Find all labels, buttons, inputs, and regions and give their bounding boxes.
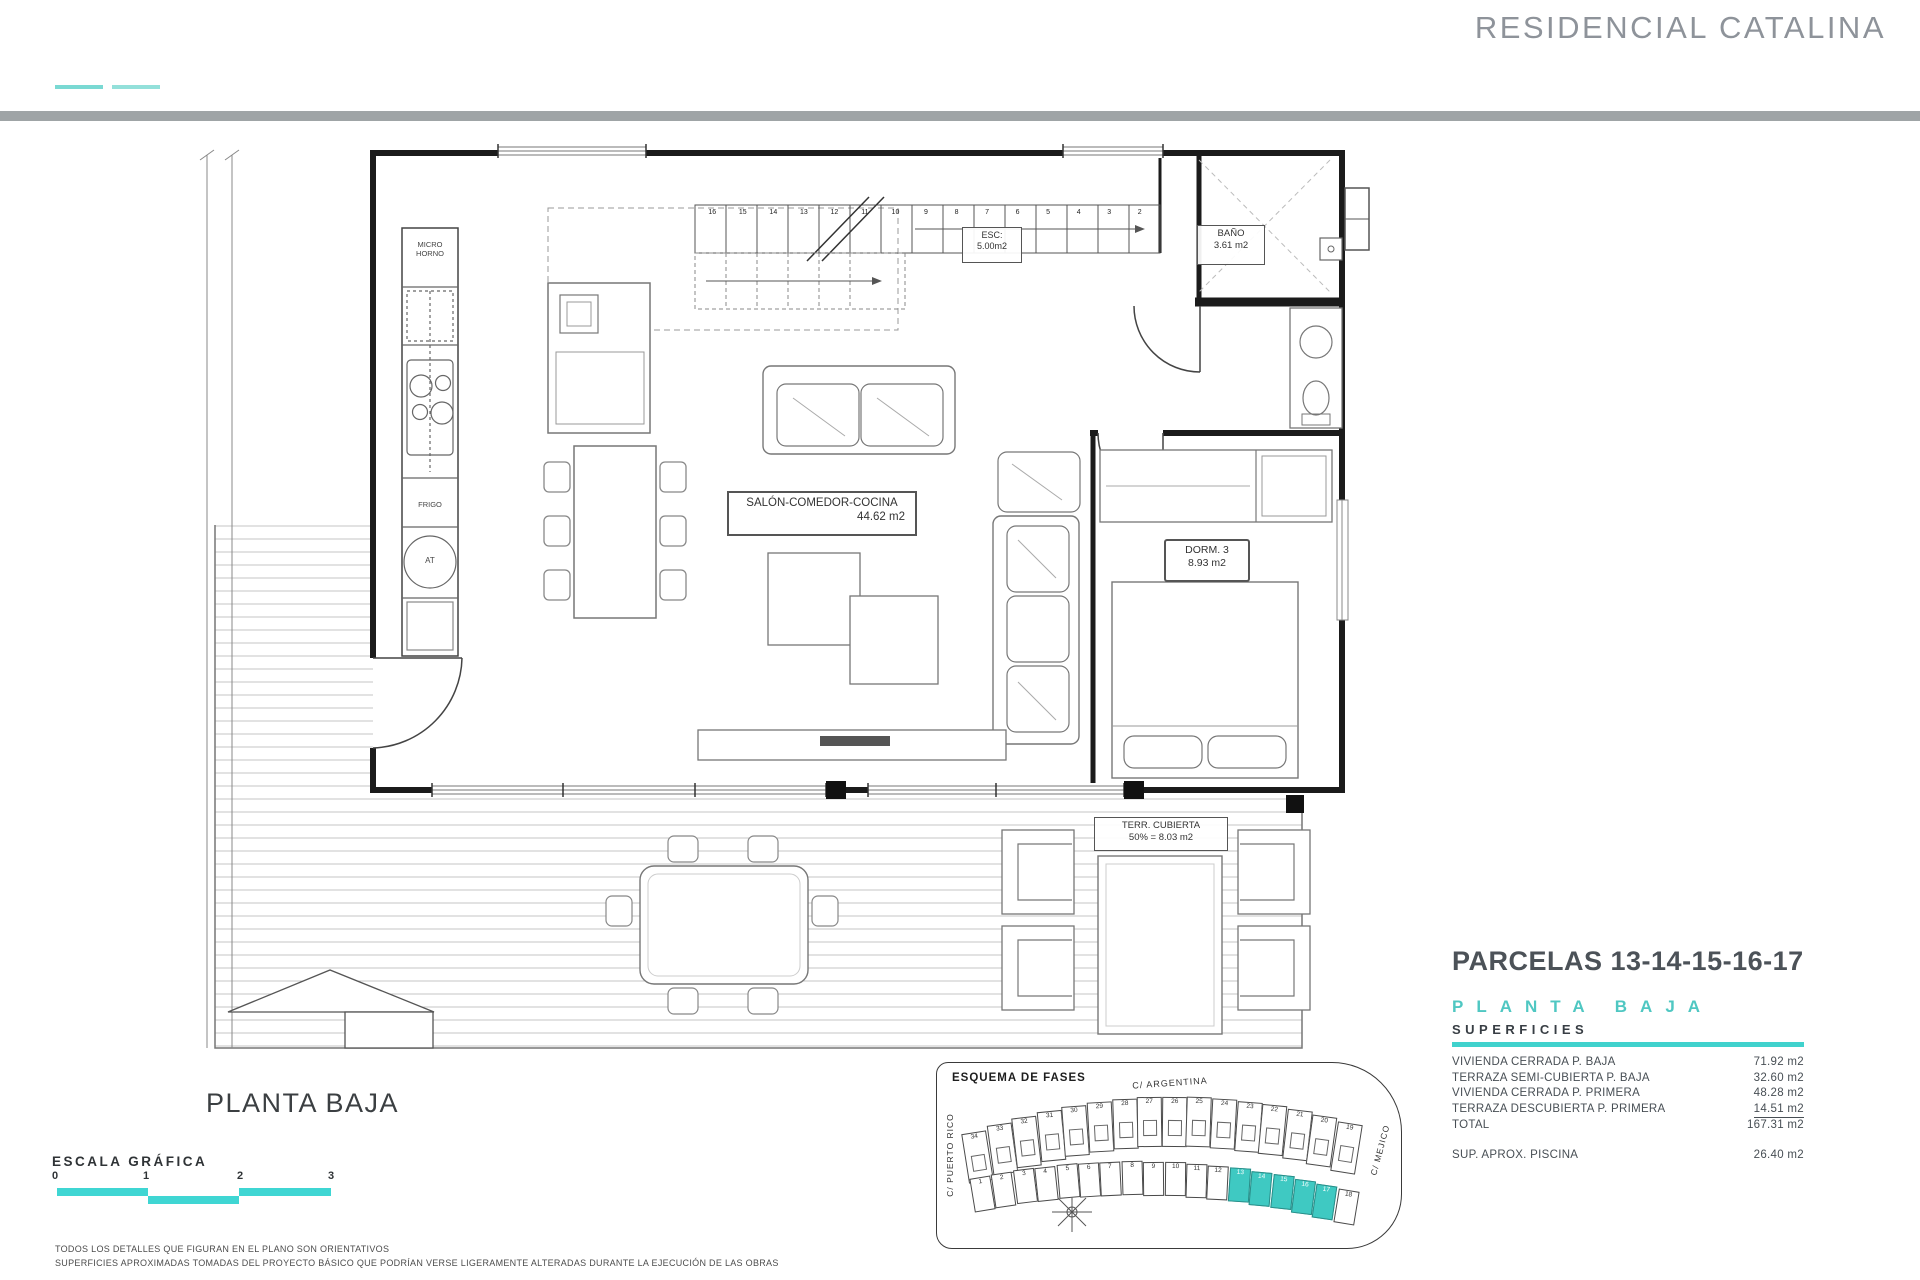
stair-number: 9 bbox=[911, 209, 942, 216]
parcel-cell: 11 bbox=[1186, 1164, 1208, 1199]
parcel-number: 19 bbox=[1338, 1123, 1362, 1134]
stair-number: 10 bbox=[880, 209, 911, 216]
house-footprint bbox=[995, 1146, 1011, 1164]
parcel-number: 2 bbox=[992, 1173, 1012, 1184]
parcel-cell: 28 bbox=[1112, 1099, 1139, 1150]
living-furniture bbox=[698, 366, 1080, 760]
house-footprint bbox=[1044, 1133, 1059, 1150]
parcel-number: 20 bbox=[1313, 1116, 1337, 1127]
stair-number: 15 bbox=[728, 209, 759, 216]
row-value: 167.31 m2 bbox=[1747, 1118, 1804, 1134]
room-area: 3.61 m2 bbox=[1214, 240, 1248, 251]
surface-row: VIVIENDA CERRADA P. PRIMERA48.28 m2 bbox=[1452, 1086, 1804, 1102]
scale-tick: 3 bbox=[328, 1170, 334, 1182]
parcel-number: 6 bbox=[1079, 1163, 1098, 1172]
parcel-number: 16 bbox=[1295, 1180, 1315, 1190]
stair-number: 13 bbox=[789, 209, 820, 216]
surfaces-section-title: SUPERFICIES bbox=[1452, 1022, 1588, 1037]
surface-row: VIVIENDA CERRADA P. BAJA71.92 m2 bbox=[1452, 1055, 1804, 1071]
parcel-cell: 7 bbox=[1100, 1161, 1123, 1196]
stair-number: 2 bbox=[1124, 209, 1155, 216]
parcel-cell: 29 bbox=[1087, 1101, 1115, 1152]
logo-dash bbox=[112, 85, 160, 89]
water-heater-label: AT bbox=[402, 556, 458, 565]
surfaces-table: VIVIENDA CERRADA P. BAJA71.92 m2TERRAZA … bbox=[1452, 1055, 1804, 1134]
house-footprint bbox=[1216, 1122, 1231, 1139]
parcel-number: 15 bbox=[1273, 1176, 1293, 1186]
dining-set bbox=[544, 446, 686, 618]
house-footprint bbox=[1337, 1145, 1353, 1163]
graphic-scale-title: ESCALA GRÁFICA bbox=[52, 1154, 207, 1169]
row-value: 32.60 m2 bbox=[1754, 1071, 1804, 1087]
parcel-number: 22 bbox=[1263, 1105, 1287, 1115]
parcel-number: 23 bbox=[1238, 1102, 1262, 1112]
plan-sheet: { "header": { "title": "RESIDENCIAL CATA… bbox=[0, 0, 1920, 1280]
house-footprint bbox=[1118, 1122, 1132, 1138]
stair-number: 3 bbox=[1094, 209, 1125, 216]
parcel-cell: 24 bbox=[1210, 1098, 1238, 1149]
house-footprint bbox=[1313, 1138, 1329, 1156]
room-area: 50% = 8.03 m2 bbox=[1129, 832, 1193, 843]
room-name: SALÓN-COMEDOR-COCINA bbox=[746, 497, 897, 509]
row-value: 26.40 m2 bbox=[1754, 1148, 1804, 1164]
parcel-number: 11 bbox=[1187, 1165, 1206, 1174]
row-value: 14.51 m2 bbox=[1754, 1102, 1804, 1119]
stair-number: 4 bbox=[1063, 209, 1094, 216]
stair-tread-numbers: 1615141312111098765432 bbox=[697, 209, 1155, 216]
bathroom-label: BAÑO 3.61 m2 bbox=[1197, 225, 1265, 265]
disclaimer-line: TODOS LOS DETALLES QUE FIGURAN EN EL PLA… bbox=[55, 1244, 389, 1254]
room-name: BAÑO bbox=[1218, 228, 1245, 239]
bedroom-label: DORM. 3 8.93 m2 bbox=[1164, 539, 1250, 582]
row-label: TERRAZA DESCUBIERTA P. PRIMERA bbox=[1452, 1102, 1666, 1119]
kitchen-island bbox=[548, 283, 650, 433]
parcel-number: 27 bbox=[1138, 1098, 1161, 1106]
stair-number: 8 bbox=[941, 209, 972, 216]
parcel-cell: 15 bbox=[1270, 1174, 1294, 1210]
stairs-area-label: ESC: 5.00m2 bbox=[962, 227, 1022, 263]
parcel-number: 26 bbox=[1163, 1098, 1186, 1106]
parcel-number: 31 bbox=[1038, 1111, 1062, 1121]
parcel-cell: 4 bbox=[1034, 1166, 1058, 1202]
parcel-number: 28 bbox=[1113, 1100, 1136, 1109]
house-footprint bbox=[1069, 1128, 1084, 1145]
row-value: 48.28 m2 bbox=[1754, 1086, 1804, 1102]
parcel-number: 29 bbox=[1088, 1102, 1111, 1111]
parcel-number: 32 bbox=[1013, 1117, 1037, 1128]
parcel-number: 25 bbox=[1188, 1098, 1211, 1107]
stair-number: 14 bbox=[758, 209, 789, 216]
parcel-number: 1 bbox=[971, 1177, 991, 1188]
row-label: VIVIENDA CERRADA P. PRIMERA bbox=[1452, 1086, 1640, 1102]
parcel-cell: 27 bbox=[1137, 1097, 1163, 1147]
parcel-number: 33 bbox=[987, 1124, 1011, 1135]
teal-rule bbox=[1452, 1042, 1804, 1047]
stair-direction-arrows bbox=[706, 225, 1145, 285]
house-footprint bbox=[1093, 1125, 1108, 1142]
stair-number: 5 bbox=[1033, 209, 1064, 216]
house-footprint bbox=[970, 1154, 986, 1172]
parcel-number: 8 bbox=[1122, 1162, 1141, 1171]
parcel-number: 24 bbox=[1213, 1099, 1236, 1108]
bedroom-furniture bbox=[1100, 450, 1332, 778]
parcel-number: 14 bbox=[1252, 1172, 1272, 1182]
street-label-puerto-rico: C/ PUERTO RICO bbox=[945, 1100, 955, 1210]
surface-row: TERRAZA DESCUBIERTA P. PRIMERA14.51 m2 bbox=[1452, 1102, 1804, 1119]
development-title: RESIDENCIAL CATALINA bbox=[1475, 10, 1886, 46]
parcel-cell: 26 bbox=[1162, 1097, 1188, 1147]
living-room-label: SALÓN-COMEDOR-COCINA 44.62 m2 bbox=[727, 491, 917, 536]
kitchen-units bbox=[402, 228, 458, 656]
parcel-cell: 25 bbox=[1186, 1097, 1213, 1148]
deck-hatch-left bbox=[215, 525, 373, 1048]
parcel-cell: 9 bbox=[1143, 1162, 1164, 1196]
row-label: TOTAL bbox=[1452, 1118, 1490, 1134]
stair-number: 6 bbox=[1002, 209, 1033, 216]
parcel-number: 34 bbox=[962, 1132, 986, 1143]
row-label: TERRAZA SEMI-CUBIERTA P. BAJA bbox=[1452, 1071, 1650, 1087]
pool-surface-row: SUP. APROX. PISCINA 26.40 m2 bbox=[1452, 1148, 1804, 1164]
room-area: 5.00m2 bbox=[977, 241, 1007, 251]
parcel-number: 10 bbox=[1166, 1163, 1185, 1171]
parcel-cell: 30 bbox=[1062, 1105, 1091, 1157]
logo-dash bbox=[55, 85, 103, 89]
scale-tick: 2 bbox=[237, 1170, 243, 1182]
room-name: DORM. 3 bbox=[1185, 544, 1229, 556]
parcel-number: 30 bbox=[1063, 1106, 1087, 1116]
disclaimer-line: SUPERFICIES APROXIMADAS TOMADAS DEL PROY… bbox=[55, 1258, 779, 1268]
surface-row: TERRAZA SEMI-CUBIERTA P. BAJA32.60 m2 bbox=[1452, 1071, 1804, 1087]
row-label: VIVIENDA CERRADA P. BAJA bbox=[1452, 1055, 1616, 1071]
parcel-cell: 8 bbox=[1121, 1161, 1143, 1196]
parcel-number: 4 bbox=[1036, 1167, 1056, 1177]
stair-number: 16 bbox=[697, 209, 728, 216]
house-footprint bbox=[1143, 1120, 1157, 1136]
stair-number: 11 bbox=[850, 209, 881, 216]
parcels-title: PARCELAS 13-14-15-16-17 bbox=[1452, 946, 1804, 977]
room-area: 44.62 m2 bbox=[729, 510, 915, 524]
house-footprint bbox=[1020, 1139, 1036, 1157]
parcel-cell: 5 bbox=[1056, 1164, 1080, 1200]
floor-subtitle: PLANTA BAJA bbox=[1452, 997, 1713, 1017]
parcel-cell: 10 bbox=[1164, 1162, 1185, 1196]
room-area: 8.93 m2 bbox=[1188, 557, 1226, 569]
micro-oven-label: MICRO HORNO bbox=[402, 240, 458, 258]
scale-bar-segment bbox=[239, 1188, 331, 1196]
house-footprint bbox=[1289, 1133, 1305, 1151]
scale-tick: 1 bbox=[143, 1170, 149, 1182]
row-label: SUP. APROX. PISCINA bbox=[1452, 1148, 1578, 1164]
parcel-cell: 14 bbox=[1249, 1171, 1273, 1207]
stair-number: 7 bbox=[972, 209, 1003, 216]
surface-row: TOTAL167.31 m2 bbox=[1452, 1118, 1804, 1134]
parcel-number: 17 bbox=[1317, 1185, 1337, 1196]
house-footprint bbox=[1191, 1120, 1205, 1136]
parcel-number: 7 bbox=[1101, 1162, 1120, 1171]
parcel-number: 5 bbox=[1057, 1165, 1077, 1175]
parcel-number: 21 bbox=[1288, 1110, 1312, 1121]
parcel-cell: 13 bbox=[1228, 1168, 1251, 1203]
parcel-number: 13 bbox=[1230, 1169, 1249, 1178]
stair-number: 12 bbox=[819, 209, 850, 216]
room-name: TERR. CUBIERTA bbox=[1122, 820, 1200, 831]
covered-terrace-label: TERR. CUBIERTA 50% = 8.03 m2 bbox=[1094, 817, 1228, 851]
header-divider bbox=[0, 111, 1920, 121]
scale-tick-labels: 0123 bbox=[52, 1170, 342, 1184]
fridge-label: FRIGO bbox=[402, 500, 458, 509]
parcel-number: 12 bbox=[1209, 1166, 1228, 1175]
row-value: 71.92 m2 bbox=[1754, 1055, 1804, 1071]
scale-bar-segment bbox=[57, 1188, 148, 1196]
scale-bar-segment bbox=[148, 1196, 239, 1204]
parcel-cell: 12 bbox=[1207, 1165, 1230, 1200]
house-footprint bbox=[1167, 1120, 1181, 1136]
parcel-number: 3 bbox=[1014, 1169, 1034, 1179]
parcel-number: 18 bbox=[1338, 1190, 1358, 1201]
floor-plan-title: PLANTA BAJA bbox=[206, 1088, 399, 1119]
site-plan-title: ESQUEMA DE FASES bbox=[952, 1072, 1086, 1084]
scale-tick: 0 bbox=[52, 1170, 58, 1182]
terrace-lounge-set bbox=[1002, 830, 1310, 1034]
house-footprint bbox=[1264, 1128, 1279, 1145]
parcel-number: 9 bbox=[1144, 1163, 1163, 1171]
house-footprint bbox=[1240, 1124, 1255, 1141]
parcel-cell: 6 bbox=[1078, 1162, 1101, 1197]
room-name: ESC: bbox=[981, 230, 1002, 240]
